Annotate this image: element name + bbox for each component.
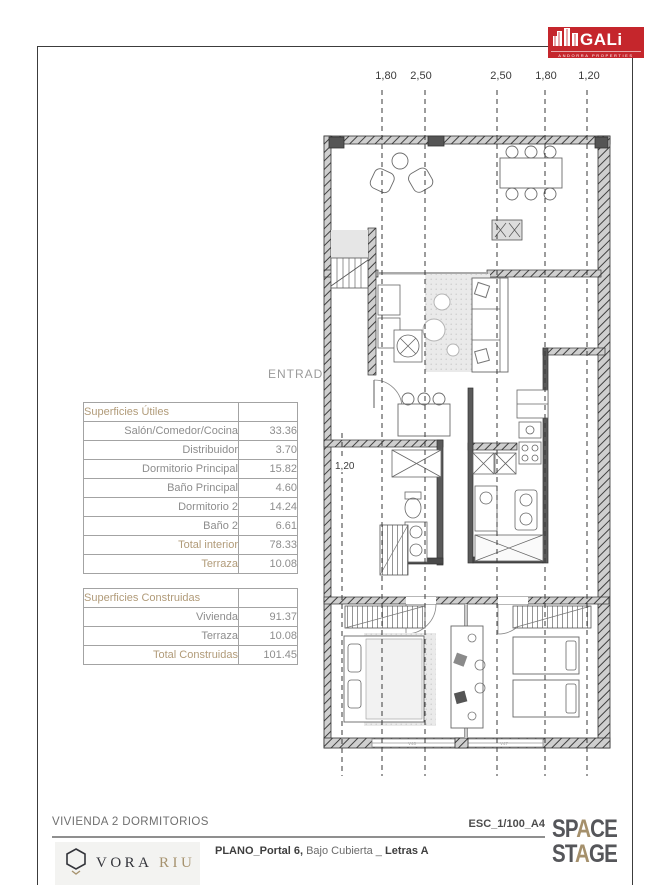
table-row: Distribuidor3.70 bbox=[84, 441, 298, 460]
gali-subtitle: ANDORRA PROPERTIES bbox=[551, 51, 641, 58]
kitchen-table bbox=[398, 393, 450, 436]
table-row: Salón/Comedor/Cocina33.36 bbox=[84, 422, 298, 441]
table-row: Dormitorio 214.24 bbox=[84, 498, 298, 517]
scale-label: ESC_1/100_A4 bbox=[420, 818, 545, 830]
vora-wordmark: VORA RIU bbox=[96, 855, 195, 872]
construidas-title: Superficies Construidas bbox=[84, 589, 239, 608]
table-superficies-construidas: Superficies Construidas Vivienda91.37 Te… bbox=[83, 588, 298, 665]
dim-label-1: 1,80 bbox=[369, 70, 403, 82]
table-row: Vivienda91.37 bbox=[84, 608, 298, 627]
table-superficies-utiles: Superficies Útiles Salón/Comedor/Cocina3… bbox=[83, 402, 298, 574]
table-row: Terraza10.08 bbox=[84, 627, 298, 646]
dim-label-2: 2,50 bbox=[404, 70, 438, 82]
hexagon-icon bbox=[65, 847, 87, 880]
living-room-furniture bbox=[423, 220, 522, 372]
space-line: SPACE bbox=[552, 817, 617, 842]
plano-bold: PLANO_Portal 6, bbox=[215, 845, 303, 857]
dim-label-4: 1,80 bbox=[529, 70, 563, 82]
space-sp: SP bbox=[552, 815, 576, 843]
space-a: A bbox=[576, 815, 590, 843]
dim-label-3: 2,50 bbox=[484, 70, 518, 82]
inner-dim-label: 1,20 bbox=[335, 461, 355, 472]
table-row: Baño 26.61 bbox=[84, 517, 298, 536]
gali-wordmark: GALi bbox=[580, 30, 623, 50]
vora-riu-logo: VORA RIU bbox=[55, 842, 200, 885]
kitchen-left-fixtures bbox=[378, 285, 422, 362]
table-row-terraza: Terraza10.08 bbox=[84, 555, 298, 574]
footer-divider bbox=[52, 836, 545, 838]
right-bedroom-furniture bbox=[513, 606, 591, 717]
space-stage-logo: SPACE STAGE bbox=[552, 817, 617, 867]
desk-furniture bbox=[451, 626, 485, 728]
unit-title: VIVIENDA 2 DORMITORIOS bbox=[52, 816, 209, 828]
corridor-wardrobe bbox=[380, 525, 408, 575]
stage-ge: GE bbox=[589, 840, 617, 868]
stage-a: A bbox=[575, 840, 589, 868]
vora-dark: VORA bbox=[96, 855, 159, 871]
kitchen-right-fixtures bbox=[473, 390, 548, 474]
stage-st: ST bbox=[552, 840, 575, 868]
gali-logo: GALi ANDORRA PROPERTIES bbox=[548, 27, 644, 58]
plano-line: PLANO_Portal 6, Bajo Cubierta _ Letras A bbox=[215, 845, 429, 857]
plan-sheet: GALi ANDORRA PROPERTIES 1,80 2,50 2,50 1… bbox=[0, 0, 666, 885]
stage-line: STAGE bbox=[552, 842, 617, 867]
vora-tan: RIU bbox=[159, 855, 195, 871]
plano-regular: Bajo Cubierta _ bbox=[306, 845, 385, 857]
bottom-windows bbox=[372, 738, 543, 748]
window-label-left: V46 bbox=[408, 741, 417, 746]
terrace-furniture bbox=[368, 146, 562, 200]
window-label-right: V47 bbox=[500, 741, 509, 746]
right-bathroom-fixtures bbox=[475, 486, 543, 561]
table-row: Dormitorio Principal15.82 bbox=[84, 460, 298, 479]
space-ce: CE bbox=[590, 815, 617, 843]
table-row: Baño Principal4.60 bbox=[84, 479, 298, 498]
table-row-total-construidas: Total Construidas101.45 bbox=[84, 646, 298, 665]
table-row-total-interior: Total interior78.33 bbox=[84, 536, 298, 555]
floor-plan: 1,20 V46 V47 bbox=[320, 88, 616, 788]
gali-building-icon bbox=[552, 27, 580, 52]
left-bedroom-furniture bbox=[344, 606, 436, 726]
plano-bold2: Letras A bbox=[385, 845, 429, 857]
dim-label-5: 1,20 bbox=[572, 70, 606, 82]
utiles-title: Superficies Útiles bbox=[84, 403, 239, 422]
